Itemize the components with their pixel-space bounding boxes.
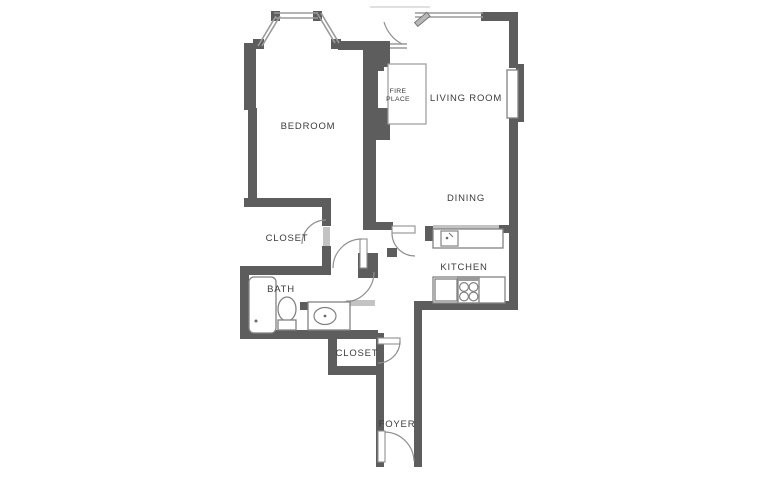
- fireplace-chimney: [363, 60, 378, 140]
- toilet-tank: [278, 320, 296, 330]
- floor-plan-drawing: BEDROOM LIVING ROOM DINING KITCHEN CLOSE…: [0, 0, 768, 480]
- kitchen-label: KITCHEN: [440, 262, 487, 273]
- entry-door-leaf: [378, 431, 385, 462]
- vanity-sink-drain: [324, 315, 327, 318]
- foyer-closet-door-leaf: [378, 338, 400, 344]
- bathtub-drain: [255, 320, 258, 323]
- fireplace-label-line1: FIRE: [390, 88, 407, 95]
- window: [317, 13, 335, 43]
- window: [258, 16, 276, 46]
- bath-label: BATH: [267, 284, 295, 295]
- dining-door-leaf: [392, 226, 415, 233]
- window: [321, 13, 339, 43]
- stove-panel: [458, 277, 479, 281]
- wall: [244, 266, 331, 275]
- wall: [322, 198, 331, 226]
- window: [507, 70, 518, 118]
- wall: [509, 118, 518, 301]
- balcony-door-arc: [384, 22, 402, 44]
- balcony-door-leaf: [415, 12, 430, 26]
- bath-fixtures: [249, 277, 350, 333]
- hall-closet-label: CLOSET: [336, 348, 379, 359]
- hall-door-arc: [333, 239, 362, 268]
- bedroom-closet-label: CLOSET: [266, 233, 309, 244]
- wall: [322, 246, 331, 268]
- kitchen-sink-drain: [446, 237, 449, 240]
- kitchen-counter-top: [433, 229, 503, 248]
- wall: [248, 108, 257, 202]
- fridge-counter: [435, 279, 457, 301]
- living-room-label: LIVING ROOM: [430, 93, 502, 104]
- wall: [244, 43, 256, 110]
- wall: [414, 301, 422, 467]
- fireplace-chimney: [377, 62, 384, 71]
- wall: [328, 366, 378, 375]
- wall: [244, 198, 330, 207]
- floor-plan: BEDROOM LIVING ROOM DINING KITCHEN CLOSE…: [0, 0, 768, 480]
- foyer-label: FOYER: [379, 419, 416, 430]
- hall-door-leaf: [360, 239, 367, 268]
- wall: [363, 138, 376, 230]
- wall: [387, 248, 397, 257]
- toilet: [278, 297, 296, 321]
- bedroom-label: BEDROOM: [281, 121, 336, 132]
- wall: [363, 222, 393, 230]
- dining-label: DINING: [447, 193, 485, 204]
- fireplace-label-line2: PLACE: [386, 96, 410, 103]
- wall: [481, 12, 511, 21]
- entry-door-arc: [385, 432, 414, 461]
- closet-door-leaf: [323, 227, 330, 246]
- wall: [240, 266, 249, 339]
